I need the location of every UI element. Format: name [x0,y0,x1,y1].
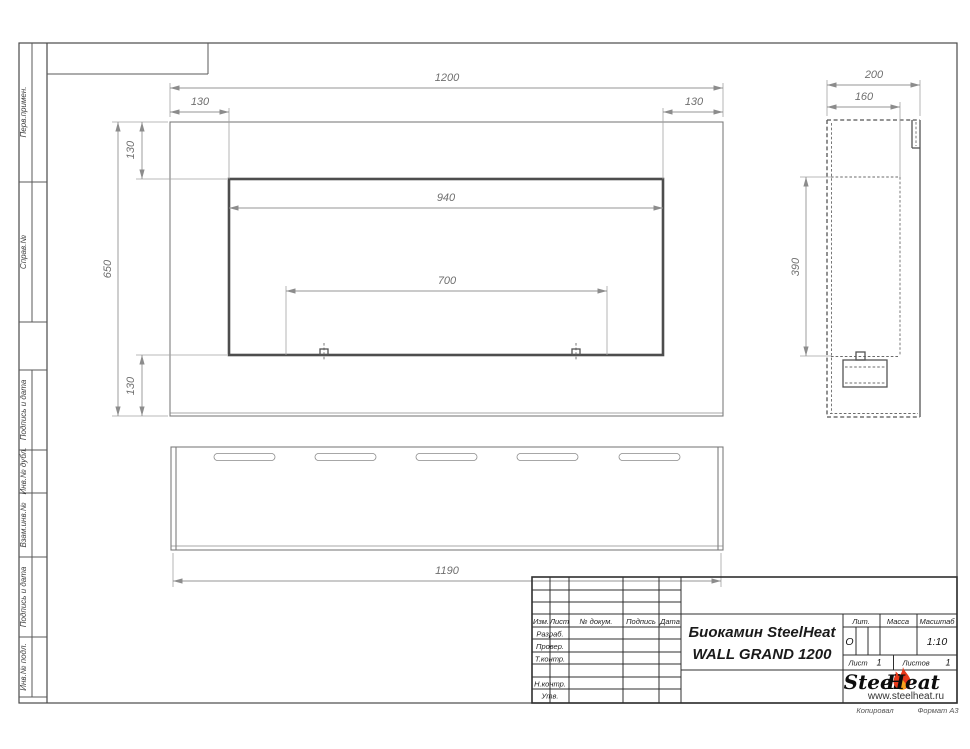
margin-label-perv-primen: Перв.примен. [19,87,28,138]
burner-mark-right [572,343,580,361]
front-view-dimensions: 1200 130 130 940 700 650 130 130 [102,72,723,416]
steelheat-logo: Steel Heat www.steelheat.ru [844,667,944,702]
dim-front-right-inset: 130 [685,96,704,108]
tb-row-nkontr: Н.контр. [534,680,566,689]
burner-tray [843,352,887,387]
tb-header-list: Лист [549,617,569,626]
dim-front-top-inset: 130 [125,140,137,159]
margin-label-podpis-data-upper: Подпись и дата [19,379,28,440]
sheet-footer: Копировал Формат А3 [856,706,959,715]
tb-header-data: Дата [659,617,680,626]
front-view [170,122,723,416]
wall-bracket [912,120,920,148]
doc-title-line2: WALL GRAND 1200 [693,646,833,663]
tb-row-prover: Провер. [536,642,564,651]
tb-masshtab-value: 1:10 [927,636,948,648]
drawing-sheet: Перв.примен. Справ.№ Подпись и дата Инв.… [0,0,970,749]
footer-format: Формат А3 [917,706,959,715]
vent-slots [214,454,680,461]
side-view [827,120,920,417]
dim-front-bottom-inset: 130 [125,376,137,395]
burner-mark-left [320,343,328,361]
tb-listov-label: Листов [901,659,929,668]
margin-label-inv-podl: Инв.№ подл. [19,643,28,690]
bottom-view-dimensions: 1190 [173,553,721,587]
tb-header-dokum: № докум. [579,617,612,626]
dim-front-opening-width: 940 [437,192,456,204]
bottom-view [171,447,723,550]
dim-front-burner-span: 700 [438,275,457,287]
tb-lit-label: Лит. [851,617,870,626]
dim-side-inner-depth: 160 [855,91,874,103]
tb-row-tkontr: Т.контр. [535,655,565,664]
dim-front-overall-height: 650 [102,259,114,278]
margin-label-vzam-inv: Взам.инв.№ [19,502,28,547]
tb-list-label: Лист [847,659,867,668]
dim-side-opening-height: 390 [790,257,802,276]
margin-label-inv-dubl: Инв.№ дубл. [19,448,28,495]
dim-bottom-length: 1190 [435,565,460,577]
footer-kopiroval: Копировал [856,706,894,715]
tb-list-value: 1 [876,658,881,668]
tb-header-izm: Изм. [533,617,549,626]
doc-title-line1: Биокамин SteelHeat [689,624,837,641]
tb-row-utv: Утв. [540,692,558,701]
tb-header-podpis: Подпись [626,617,656,626]
tb-listov-value: 1 [945,658,950,668]
dim-front-left-inset: 130 [191,96,210,108]
margin-label-sprav-no: Справ.№ [19,235,28,269]
logo-url: www.steelheat.ru [867,691,944,702]
margin-columns: Перв.примен. Справ.№ Подпись и дата Инв.… [19,43,47,697]
side-view-dimensions: 200 160 390 [790,69,920,356]
dim-front-overall-width: 1200 [435,72,460,84]
dim-side-depth: 200 [864,69,884,81]
tb-row-razrab: Разраб. [536,630,563,639]
top-left-stamp [47,43,208,74]
tb-massa-label: Масса [887,617,909,626]
tb-masshtab-label: Масштаб [919,617,955,626]
tb-lit-value: О [845,636,853,648]
margin-label-podpis-data-lower: Подпись и дата [19,566,28,627]
sheet-frame [19,43,957,703]
